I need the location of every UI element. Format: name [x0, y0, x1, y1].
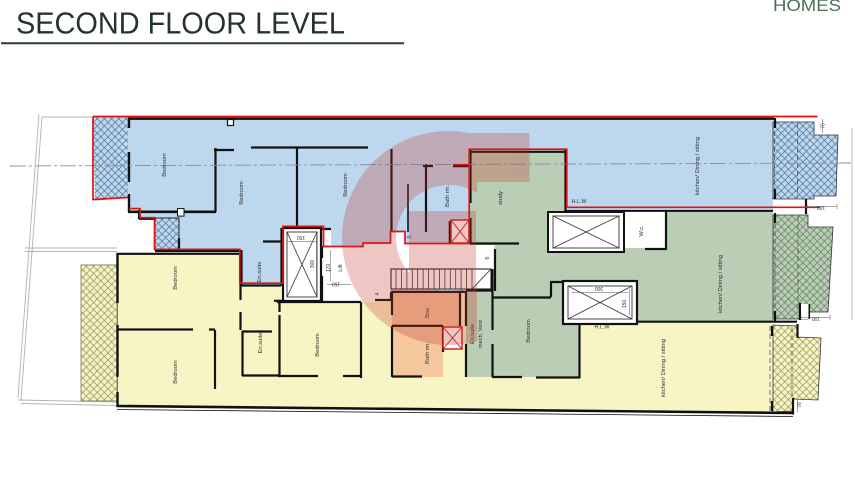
svg-text:150: 150: [297, 234, 306, 240]
svg-text:Bedroom: Bedroom: [239, 181, 245, 205]
svg-text:H.L.W: H.L.W: [595, 325, 611, 331]
svg-text:Bedroom: Bedroom: [173, 360, 179, 384]
svg-text:W.c.: W.c.: [639, 225, 645, 237]
svg-text:En.suite: En.suite: [257, 262, 263, 283]
svg-text:Bedroom: Bedroom: [162, 153, 168, 177]
svg-text:Lift: Lift: [338, 264, 344, 272]
svg-text:kitchen/ Dining / sitting: kitchen/ Dining / sitting: [661, 339, 667, 397]
svg-text:100: 100: [812, 315, 821, 321]
svg-text:Bath rm.: Bath rm.: [425, 342, 431, 364]
svg-text:Bedroom: Bedroom: [526, 319, 532, 343]
svg-text:kitchen/ Dining / sitting: kitchen/ Dining / sitting: [718, 255, 724, 313]
svg-text:H.L.W: H.L.W: [572, 199, 588, 205]
svg-text:mech. Vent: mech. Vent: [478, 320, 484, 348]
svg-text:Bath rm.: Bath rm.: [445, 185, 451, 207]
svg-text:study: study: [498, 191, 504, 205]
svg-text:Bedroom: Bedroom: [343, 173, 349, 197]
svg-text:300: 300: [310, 260, 316, 269]
svg-text:SECOND FLOOR LEVEL: SECOND FLOOR LEVEL: [16, 6, 345, 41]
svg-text:HOMES: HOMES: [773, 0, 841, 15]
svg-text:150: 150: [332, 281, 341, 287]
svg-text:En.suite: En.suite: [258, 333, 264, 354]
svg-text:Bedroom: Bedroom: [315, 333, 321, 357]
svg-text:150: 150: [622, 300, 628, 309]
svg-text:100: 100: [817, 204, 826, 210]
svg-text:76: 76: [821, 123, 827, 129]
svg-text:kitchen/ Dining / sitting: kitchen/ Dining / sitting: [695, 137, 701, 195]
svg-text:6: 6: [485, 256, 491, 259]
svg-text:170: 170: [326, 264, 332, 273]
svg-text:Bedroom: Bedroom: [173, 266, 179, 290]
svg-text:300: 300: [595, 285, 604, 291]
svg-text:76: 76: [797, 402, 803, 408]
